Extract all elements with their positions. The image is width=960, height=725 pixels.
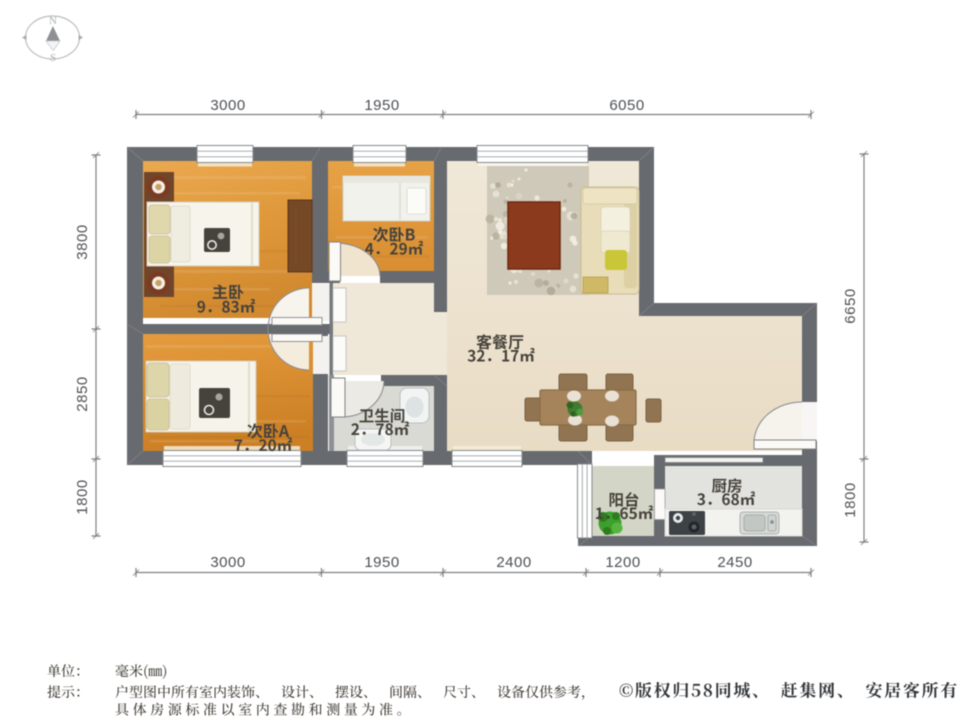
svg-text:1950: 1950	[364, 554, 399, 571]
svg-text:2850: 2850	[74, 376, 91, 411]
svg-text:6050: 6050	[609, 97, 644, 114]
svg-text:1200: 1200	[605, 554, 640, 571]
svg-text:3000: 3000	[210, 554, 245, 571]
svg-text:3800: 3800	[74, 224, 91, 259]
svg-text:2450: 2450	[717, 554, 752, 571]
svg-text:N: N	[49, 15, 57, 27]
svg-text:6650: 6650	[842, 288, 859, 323]
svg-text:1800: 1800	[842, 482, 859, 517]
svg-text:1950: 1950	[364, 97, 399, 114]
svg-text:S: S	[50, 52, 56, 64]
svg-text:1800: 1800	[74, 479, 91, 514]
svg-text:2400: 2400	[496, 554, 531, 571]
svg-text:3000: 3000	[210, 97, 245, 114]
